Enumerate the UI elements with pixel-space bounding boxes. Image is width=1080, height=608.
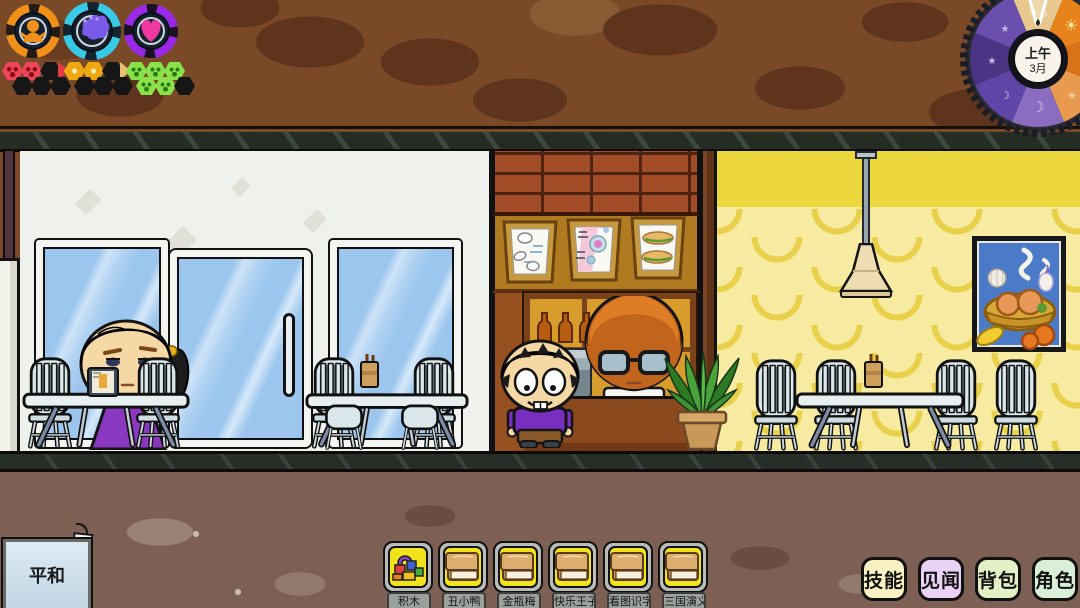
clock-period: 上午 (1025, 46, 1051, 61)
hotbar-item-book-5[interactable]: 三国演义 (658, 541, 708, 593)
book-icon (665, 551, 701, 583)
green-smile-train (126, 62, 193, 95)
book-icon (555, 551, 591, 583)
facade-column (0, 258, 20, 451)
menu-board-drinks (564, 216, 624, 286)
skills-button[interactable]: 技能 (861, 557, 907, 601)
boy-customer-character[interactable] (494, 336, 586, 448)
svg-text:☽: ☽ (1031, 98, 1044, 116)
condiment-holder (358, 352, 381, 390)
gold-star-train (64, 62, 131, 95)
backpack-button[interactable]: 背包 (975, 557, 1021, 601)
hotbar-item-book-2[interactable]: 金瓶梅 (493, 541, 543, 593)
item-label: 三国演义 (662, 592, 706, 608)
door-handle[interactable] (283, 313, 295, 397)
chair-front (398, 404, 442, 450)
condiment-holder (862, 352, 885, 390)
svg-text:★: ★ (1001, 24, 1010, 35)
item-label: 金瓶梅 (497, 592, 541, 608)
hotbar-item-book-3[interactable]: 快乐王子 (548, 541, 598, 593)
roof-band (0, 132, 1080, 152)
item-frame (388, 546, 428, 588)
mood-sign-label: 平和 (29, 562, 65, 588)
heart-icon (124, 4, 178, 58)
mind-gauge[interactable] (63, 2, 121, 60)
skills-button-label: 技能 (864, 566, 904, 593)
item-frame (443, 546, 483, 588)
facade-column-top (3, 151, 15, 261)
book-icon (445, 551, 481, 583)
item-label: 丑小鸭 (442, 592, 486, 608)
mood-sign[interactable]: 平和 (3, 539, 91, 608)
svg-text:☽: ☽ (1000, 89, 1010, 102)
clock-month: 3月 (1029, 63, 1046, 75)
time-wheel[interactable]: ☀☽ ☀ ☀ ☀ ☽ ☽ ★ ★ 上午 3月 (957, 0, 1080, 140)
item-frame (553, 546, 593, 588)
backpack-button-label: 背包 (978, 566, 1018, 593)
open-book (84, 366, 122, 400)
character-button[interactable]: 角色 (1032, 557, 1078, 601)
dining-table (795, 388, 965, 450)
item-frame (498, 546, 538, 588)
chair (752, 358, 800, 452)
pendant-lamp-rod (862, 151, 870, 247)
hotbar-item-book-1[interactable]: 丑小鸭 (438, 541, 488, 593)
book-icon (500, 551, 536, 583)
item-frame (608, 546, 648, 588)
game-screen: ☀☽ ☀ ☀ ☀ ☽ ☽ ★ ★ 上午 3月 平和 (0, 0, 1080, 608)
counter-brick-wall (492, 151, 700, 216)
chair-front (322, 404, 366, 450)
svg-text:☀: ☀ (1064, 16, 1078, 35)
floor-band (0, 451, 1080, 472)
potted-plant (662, 350, 742, 451)
wall-decor-diamond (231, 177, 251, 197)
character-button-label: 角色 (1035, 566, 1075, 593)
pendant-lamp-mount (855, 151, 877, 159)
news-button[interactable]: 见闻 (918, 557, 964, 601)
item-label: 积木 (387, 592, 431, 608)
mood-gauge[interactable] (124, 4, 178, 58)
book-icon (610, 551, 646, 583)
menu-board-sandwich (628, 214, 688, 284)
red-imp-train (2, 62, 69, 95)
svg-text:☀: ☀ (1068, 91, 1077, 102)
yellow-wall-band (717, 151, 1080, 207)
hotbar-item-blocks[interactable]: 积木 (383, 541, 433, 593)
wall-decor-diamond (303, 209, 327, 233)
svg-text:★: ★ (988, 56, 997, 67)
news-button-label: 见闻 (921, 566, 961, 593)
pendant-lamp-shade (838, 243, 894, 301)
baby-icon (6, 4, 60, 58)
item-label: 快乐王子 (552, 592, 596, 608)
hotbar-item-book-4[interactable]: 看图识字 (603, 541, 653, 593)
wall-decor-diamond (75, 189, 102, 216)
menu-board-food (500, 218, 560, 288)
brain-icon (63, 2, 121, 60)
item-frame (663, 546, 703, 588)
item-label: 看图识字 (607, 592, 651, 608)
food-painting (972, 236, 1066, 352)
vitality-gauge[interactable] (6, 4, 60, 58)
blocks-icon (390, 551, 426, 583)
chair (992, 358, 1040, 452)
